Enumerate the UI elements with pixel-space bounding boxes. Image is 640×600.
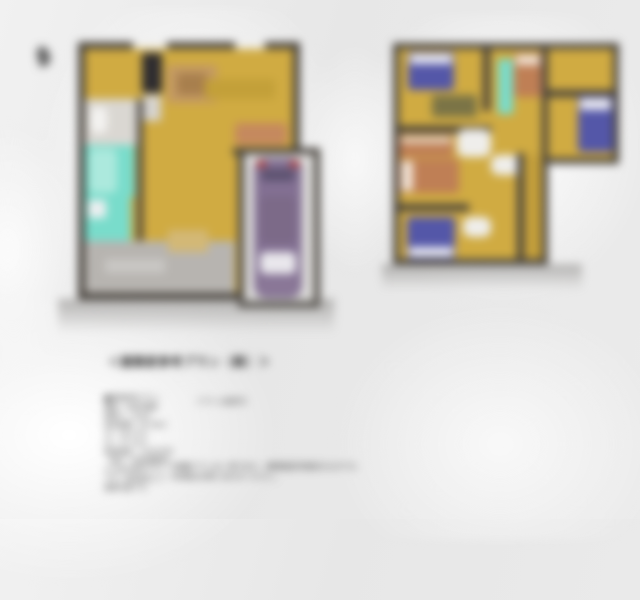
detail-line: 延床面積：95.58㎡: [104, 421, 214, 430]
floor-plan-2f-main: [393, 43, 548, 265]
footnote-line: ※詳細はお問い合わせください。: [170, 472, 363, 482]
interior-wall: [399, 204, 469, 211]
detail-line: 間取り：4LDK: [104, 412, 214, 421]
pillow: [409, 247, 453, 257]
flyer-scene: ＜建築家参考プラン（案）＞ （プラン変更可） ■建物参考プラン 構造：木造2階建…: [0, 0, 640, 519]
entrance-step: [105, 259, 165, 273]
window-icon: [235, 42, 265, 49]
floor-plan-2f-wing: [541, 43, 619, 164]
bed-blue-2: [578, 96, 613, 152]
tv-board: [142, 53, 162, 93]
closet: [498, 59, 513, 114]
door-icon: [463, 217, 491, 237]
kitchen-counter: [205, 79, 275, 99]
second-floor-shadow: [382, 264, 582, 290]
sofa: [235, 123, 287, 145]
first-floor-shadow: [58, 299, 334, 333]
counter: [143, 95, 161, 121]
carport: [238, 148, 320, 308]
door-icon: [133, 42, 167, 49]
detail-line: 建築可能です。: [104, 484, 214, 493]
interior-wall: [483, 49, 490, 111]
taillight-right-icon: [290, 161, 299, 167]
detail-line: 1F：48.27㎡: [104, 430, 214, 439]
washing-machine: [88, 200, 106, 218]
interior-wall: [517, 153, 524, 259]
detail-line: ■建物参考プラン: [104, 394, 214, 403]
dresser: [399, 135, 453, 157]
pillow: [516, 55, 540, 65]
detail-line: 構造：木造2階建: [104, 403, 214, 412]
floor-plan-2f: [393, 43, 619, 267]
toilet: [91, 107, 107, 133]
car-roof: [260, 196, 296, 244]
car-rear-window: [261, 169, 295, 181]
pillow: [580, 98, 611, 110]
pillow: [410, 54, 452, 64]
plan-caption-title: ＜建築家参考プラン（案）＞: [108, 353, 271, 370]
desk: [432, 95, 477, 117]
entrance-hall: [85, 241, 235, 293]
taillight-left-icon: [257, 161, 266, 167]
bathroom: [85, 145, 135, 197]
washroom: [85, 99, 137, 145]
staircase: [526, 153, 542, 259]
pillow: [401, 161, 413, 191]
bed-blue-3: [407, 217, 455, 259]
interior-wall: [137, 99, 143, 241]
bathtub: [89, 149, 117, 193]
car-windshield: [260, 252, 296, 274]
car-hood: [258, 278, 298, 294]
bed-blue-1: [408, 52, 454, 90]
bed-orange-1: [514, 53, 542, 97]
vestibule-floor: [168, 230, 208, 252]
detail-line: 建物価格：1,650万円: [104, 448, 214, 457]
dresser-top: [401, 137, 451, 143]
dining-table: [177, 73, 207, 95]
detail-line: 2F：47.31㎡: [104, 439, 214, 448]
footnote-line: ※掲載プランは一例であり、建築確認申請前のものです。: [170, 462, 363, 472]
plan-footnotes: ※掲載プランは一例であり、建築確認申請前のものです。 ※詳細はお問い合わせくださ…: [170, 462, 363, 482]
background-highlight-bottom-right: [330, 300, 640, 540]
car: [254, 158, 302, 298]
door-icon: [457, 129, 491, 157]
bed-orange-2: [399, 159, 459, 193]
